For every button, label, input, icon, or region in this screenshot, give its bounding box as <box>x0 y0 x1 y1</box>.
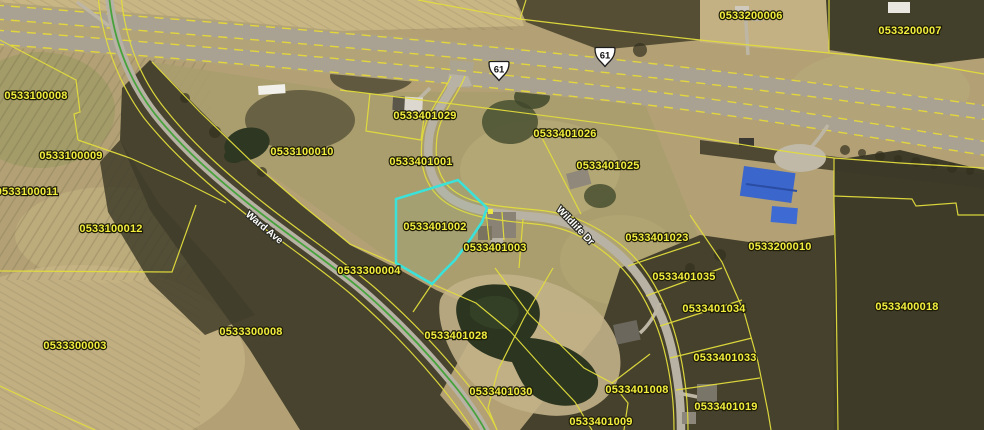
parcel-label-0533100009[interactable]: 0533100009 <box>39 150 102 162</box>
parcel-label-0533401034[interactable]: 0533401034 <box>682 303 746 315</box>
house-south-small <box>682 412 696 424</box>
parcel-label-0533401029[interactable]: 0533401029 <box>393 110 456 122</box>
parcel-label-0533401023[interactable]: 0533401023 <box>625 232 688 244</box>
parcel-label-0533100008[interactable]: 0533100008 <box>4 90 67 102</box>
route-number: 61 <box>494 65 505 76</box>
parcel-corner-marker <box>488 209 493 214</box>
parcel-label-0533401035[interactable]: 0533401035 <box>652 271 715 283</box>
parcel-label-0533401008[interactable]: 0533401008 <box>605 384 668 396</box>
parcel-label-0533200006[interactable]: 0533200006 <box>719 10 782 22</box>
parcel-label-0533200007[interactable]: 0533200007 <box>878 25 941 37</box>
parcel-label-0533401030[interactable]: 0533401030 <box>469 386 532 398</box>
parcel-label-0533300008[interactable]: 0533300008 <box>219 326 282 338</box>
gravel-lot <box>774 144 826 172</box>
parcel-label-0533400018[interactable]: 0533400018 <box>875 301 938 313</box>
parcel-label-0533401033[interactable]: 0533401033 <box>693 352 756 364</box>
parcel-label-0533100011[interactable]: 0533100011 <box>0 186 58 198</box>
parcel-label-0533300004[interactable]: 0533300004 <box>337 265 401 277</box>
parcel-label-0533401001[interactable]: 0533401001 <box>389 156 452 168</box>
parcel-map: 0533100008053310000905331000110533100012… <box>0 0 984 430</box>
gis-map-viewport[interactable]: 0533100008053310000905331000110533100012… <box>0 0 984 430</box>
parcel-label-0533401026[interactable]: 0533401026 <box>533 128 596 140</box>
parcel-label-0533300003[interactable]: 0533300003 <box>43 340 106 352</box>
truck-trailer <box>258 84 286 95</box>
parcel-label-0533401028[interactable]: 0533401028 <box>424 330 487 342</box>
building-blue-small <box>771 206 798 224</box>
parcel-label-0533401002[interactable]: 0533401002 <box>403 221 466 233</box>
parcel-label-0533100010[interactable]: 0533100010 <box>270 146 333 158</box>
building-topright-3 <box>888 2 910 13</box>
route-number: 61 <box>600 51 611 62</box>
parcel-label-0533401003[interactable]: 0533401003 <box>463 242 526 254</box>
parcel-label-0533401025[interactable]: 0533401025 <box>576 160 639 172</box>
parcel-label-0533401009[interactable]: 0533401009 <box>569 416 632 428</box>
parcel-label-0533100012[interactable]: 0533100012 <box>79 223 142 235</box>
parcel-label-0533200010[interactable]: 0533200010 <box>748 241 811 253</box>
parcel-label-0533401019[interactable]: 0533401019 <box>694 401 757 413</box>
